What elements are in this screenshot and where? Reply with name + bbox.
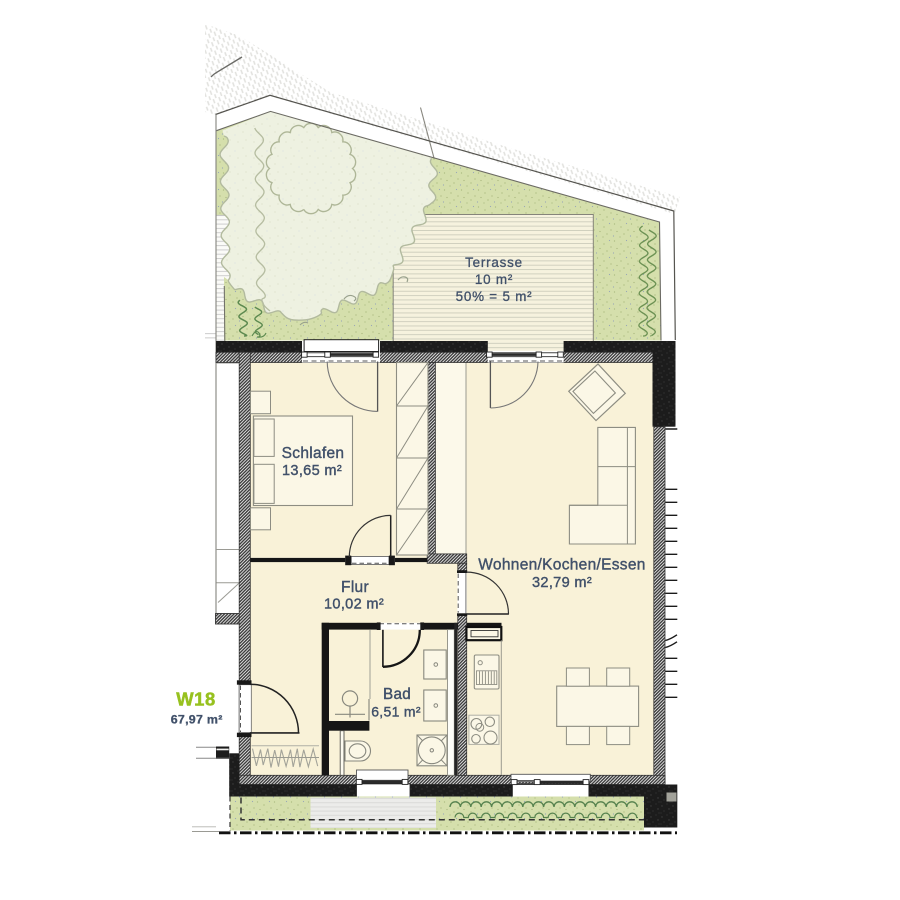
svg-text:6,51 m²: 6,51 m² (371, 704, 421, 720)
svg-text:Bad: Bad (383, 686, 411, 703)
svg-text:67,97 m²: 67,97 m² (171, 712, 223, 726)
svg-text:10,02 m²: 10,02 m² (324, 597, 384, 613)
svg-text:32,79 m²: 32,79 m² (532, 575, 592, 591)
svg-text:Wohnen/Kochen/Essen: Wohnen/Kochen/Essen (478, 557, 645, 574)
svg-text:Flur: Flur (341, 579, 369, 596)
svg-text:50% = 5 m²: 50% = 5 m² (456, 289, 533, 304)
svg-text:Schlafen: Schlafen (282, 445, 345, 462)
svg-text:10 m²: 10 m² (475, 272, 513, 287)
svg-text:W18: W18 (176, 689, 216, 710)
svg-text:13,65 m²: 13,65 m² (282, 463, 342, 479)
svg-text:Terrasse: Terrasse (465, 255, 523, 270)
